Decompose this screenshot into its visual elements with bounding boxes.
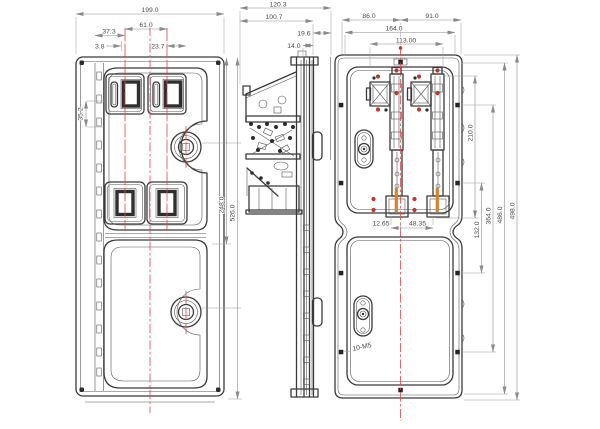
corner-screw-icon bbox=[216, 388, 221, 393]
upper-keyhole-plate bbox=[355, 130, 373, 168]
dim-overall-depth: 120.3 bbox=[269, 2, 286, 9]
corner-screw-icon bbox=[80, 388, 85, 393]
dim-inner-height: 486.0 bbox=[497, 206, 504, 223]
dim-opening-height: 35.2 bbox=[78, 107, 85, 120]
front-view: 199.0 61.0 37.3 3.8 23.7 35.2 248.0 526.… bbox=[76, 7, 242, 413]
rear-view: 10-M5 86.0 91.0 164.0 113.00 12.65 48.35 bbox=[335, 13, 520, 421]
thread-note: 10-M5 bbox=[344, 342, 373, 353]
dim-lower-span: 132.0 bbox=[474, 221, 481, 238]
dim-flange-depth: 19.6 bbox=[297, 31, 310, 38]
dim-panel-gap: 14.0 bbox=[287, 43, 300, 50]
dim-centers-spacing: 61.0 bbox=[139, 22, 152, 29]
dim-edge-to-center: 37.3 bbox=[102, 29, 115, 36]
dim-center-to-left: 86.0 bbox=[362, 13, 375, 20]
dim-mech-height: 210.0 bbox=[468, 124, 475, 141]
thread-note-label: 10-M5 bbox=[352, 342, 373, 353]
centerlines-front bbox=[125, 27, 186, 413]
dim-opening-width: 164.0 bbox=[385, 26, 402, 33]
dim-bolt-height-span: 364.0 bbox=[486, 207, 493, 224]
side-view-dimensions: 120.3 100.7 19.6 14.0 bbox=[240, 2, 331, 85]
upper-door bbox=[104, 68, 207, 230]
dim-overall-width: 199.0 bbox=[141, 7, 158, 14]
dim-mech-offset: 12.65 bbox=[372, 221, 389, 228]
dim-mech-spacing: 48.35 bbox=[409, 221, 426, 228]
dim-upper-section-height: 248.0 bbox=[219, 196, 226, 213]
corner-screw-icon bbox=[216, 61, 221, 66]
three-view-technical-drawing: 199.0 61.0 37.3 3.8 23.7 35.2 248.0 526.… bbox=[0, 0, 600, 429]
side-view: 120.3 100.7 19.6 14.0 bbox=[240, 2, 331, 398]
lower-keyhole-plate bbox=[354, 296, 372, 336]
dim-slot-offset: 3.8 bbox=[95, 43, 105, 50]
dim-lock-offset: 23.7 bbox=[151, 43, 164, 50]
engineering-drawing-canvas: 199.0 61.0 37.3 3.8 23.7 35.2 248.0 526.… bbox=[0, 0, 600, 429]
piano-hinge bbox=[95, 63, 104, 391]
dim-overall-height-rear: 498.0 bbox=[510, 202, 517, 219]
corner-screw-icon bbox=[80, 61, 85, 66]
internal-mechanism-profile bbox=[243, 72, 302, 214]
dim-bolt-span: 113.00 bbox=[396, 37, 417, 44]
dim-overall-height-side: 526.0 bbox=[230, 204, 237, 221]
lower-door bbox=[104, 240, 207, 388]
dim-center-to-right: 91.0 bbox=[425, 13, 438, 20]
dim-body-depth: 100.7 bbox=[265, 14, 282, 21]
